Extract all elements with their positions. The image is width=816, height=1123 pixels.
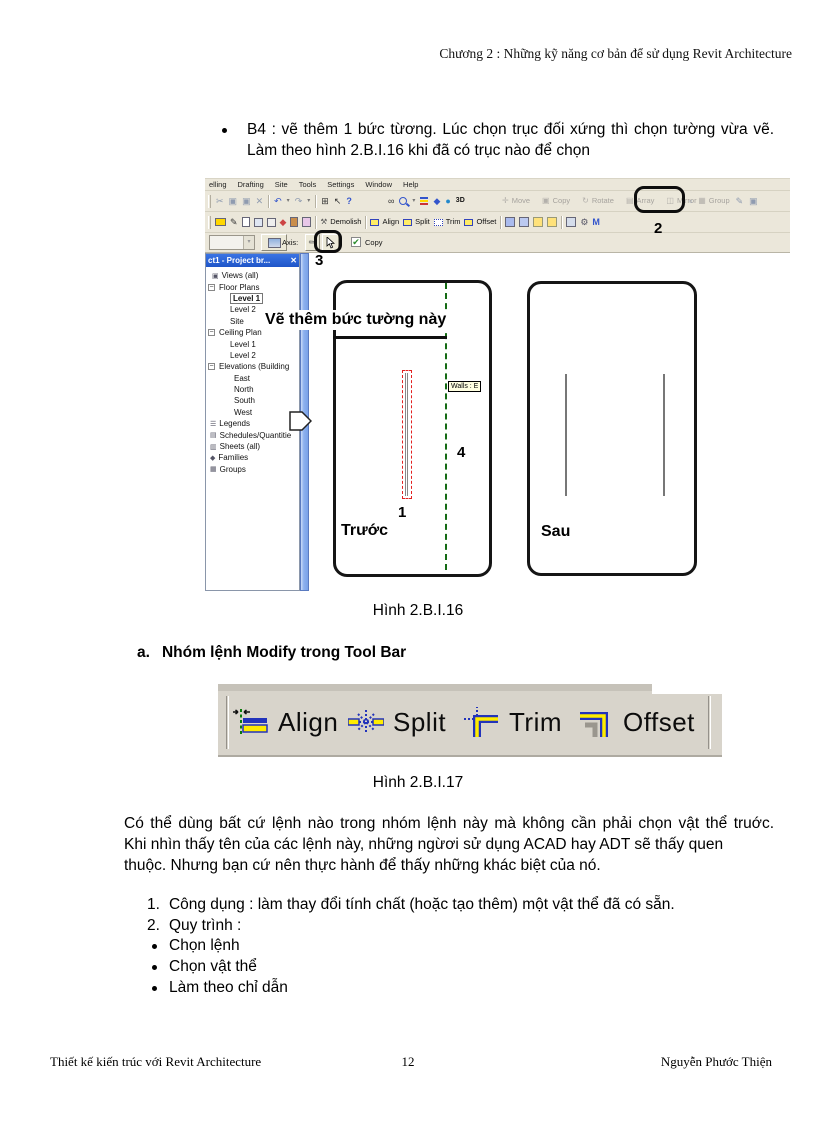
move-button[interactable]: ✛Move (502, 194, 530, 208)
groups-icon: ▦ (210, 465, 217, 473)
help-question-icon[interactable]: ? (346, 194, 352, 208)
help-pointer-icon[interactable]: ↖ (334, 194, 342, 208)
body-paragraph-line1: Có thể dùng bất cứ lệnh nào trong nhóm l… (124, 813, 774, 834)
tape-measure-icon[interactable] (215, 218, 226, 226)
split-icon (403, 219, 412, 226)
book-icon[interactable] (290, 217, 298, 227)
numbered-text-2: Quy trình : (169, 917, 241, 935)
result-wall-right (663, 374, 665, 496)
detach-icon[interactable]: ▫ (689, 194, 692, 208)
component-icon[interactable] (254, 218, 263, 227)
offset-button[interactable]: Offset (464, 215, 496, 229)
revit-toolbar-standard: ✂ ▣ ▣ ✕ ↶ ▾ ↷ ▾ ⊞ ↖? ∞ ▾ ◆ ● 3D (205, 191, 790, 212)
figure-16-caption: Hình 2.B.I.16 (55, 602, 781, 620)
array-icon: ▤ (626, 194, 634, 208)
tree-item-level-2[interactable]: Level 2 (207, 350, 299, 361)
tree-expander-icon[interactable]: − (208, 284, 215, 291)
walls-tooltip: Walls : E (448, 381, 481, 392)
rotate-label: Rotate (592, 194, 614, 208)
offset-label: Offset (623, 707, 695, 738)
group-button[interactable]: ▦ Group (698, 194, 729, 208)
footer-right: Nguyễn Phước Thiện (661, 1054, 772, 1070)
bullet-item-2: Chọn vật thể (152, 958, 772, 976)
move-label: Move (512, 194, 530, 208)
tree-item-label[interactable]: Elevations (Building (219, 362, 289, 371)
copy-icon: ▣ (542, 194, 550, 208)
b4-instruction-line2: Làm theo hình 2.B.I.16 khi đã có trục nà… (247, 140, 774, 161)
paste-icon[interactable]: ▣ (242, 194, 251, 208)
group-detach-icon[interactable] (547, 217, 557, 227)
tree-item-level-1[interactable]: Level 1 (207, 293, 299, 304)
toolbar-separator (268, 195, 269, 208)
shadow-view-icon[interactable]: ∞ (388, 194, 394, 208)
hammer-icon: ⚒ (320, 215, 327, 229)
numbered-marker-2: 2. (147, 917, 160, 935)
trim-icon (434, 219, 443, 226)
window-icon[interactable]: ⊞ (321, 194, 329, 208)
bullet-item-1: Chọn lệnh (152, 937, 772, 955)
tree-item-label[interactable]: Ceiling Plan (219, 328, 262, 337)
mirror-highlight-circle (634, 186, 685, 213)
close-icon[interactable]: ✕ (290, 256, 297, 265)
pin-icon[interactable]: ✎ (736, 194, 744, 208)
view-properties-icon[interactable] (420, 197, 428, 205)
revit-options-bar: ▾ Axis: ✎ ✔ Copy (205, 233, 790, 253)
tree-item-label[interactable]: Legends (219, 419, 250, 428)
split-label: Split (393, 707, 446, 738)
numbered-item-2: 2. Quy trình : (147, 917, 777, 935)
type-selector-combobox[interactable]: ▾ (209, 235, 255, 250)
menu-item-help[interactable]: Help (403, 180, 418, 190)
3d-view-button[interactable]: 3D (456, 194, 465, 208)
tree-item-label[interactable]: West (234, 408, 252, 417)
section-a-heading: a. Nhóm lệnh Modify trong Tool Bar (137, 644, 406, 662)
tree-item-families[interactable]: ◆Families (207, 452, 299, 463)
undo-dropdown-icon[interactable]: ▾ (287, 194, 290, 208)
axis-option-label: Axis: (282, 238, 298, 247)
legends-icon: ☰ (210, 420, 216, 428)
bullet-text-1: Chọn lệnh (169, 937, 240, 955)
fb-icon[interactable] (302, 217, 311, 227)
tree-item-west[interactable]: West (207, 407, 299, 418)
bullet-dot (222, 128, 227, 133)
copy-button[interactable]: ▣Copy (542, 194, 570, 208)
group-edit-icon[interactable] (505, 217, 515, 227)
toolbar-separator (365, 216, 366, 229)
section-a-title: Nhóm lệnh Modify trong Tool Bar (162, 644, 406, 662)
globe-icon[interactable]: ● (445, 194, 450, 208)
body-paragraph-line3: thuộc. Nhưng bạn cứ nên thực hành để thấ… (124, 855, 774, 876)
tree-item-groups[interactable]: ▦Groups (207, 464, 299, 475)
result-wall-left (565, 374, 567, 496)
pick-axis-highlight-circle (314, 230, 342, 253)
align-toolbar-button[interactable]: Align (233, 702, 338, 742)
trim-button[interactable]: Trim (434, 215, 461, 229)
offset-icon (578, 707, 614, 737)
document-page: Chương 2 : Những kỹ năng cơ bản để sử dụ… (0, 0, 816, 1123)
toolbar-separator (561, 216, 562, 229)
step-4-label: 4 (457, 444, 465, 461)
sheets-icon: ▥ (210, 443, 217, 451)
bullet-dot (152, 986, 157, 991)
schedules-icon: ▤ (210, 431, 217, 439)
tree-item-label[interactable]: Schedules/Quantitie (220, 431, 292, 440)
tree-item-label[interactable]: Groups (220, 465, 246, 474)
project-browser-panel: ct1 - Project br... ✕ ▣Views (all)−Floor… (205, 253, 300, 591)
selected-wall[interactable] (402, 370, 412, 499)
bullet-item-3: Làm theo chỉ dẫn (152, 979, 772, 997)
menu-item-window[interactable]: Window (365, 180, 392, 190)
toolbar-separator (315, 216, 316, 229)
step-3-label: 3 (315, 252, 323, 269)
room-icon[interactable] (267, 218, 276, 227)
group-icon: ▦ (698, 194, 706, 208)
link-icon[interactable] (566, 217, 576, 227)
wall-core (405, 373, 408, 496)
tree-item-label[interactable]: Level 2 (230, 351, 256, 360)
elevation-marker-arrow[interactable] (289, 411, 312, 431)
menu-item-drafting[interactable]: Drafting (238, 180, 264, 190)
toolbar-top-white (652, 684, 722, 694)
tree-item-schedules-quantitie[interactable]: ▤Schedules/Quantitie (207, 429, 299, 440)
tree-item-label[interactable]: Views (all) (222, 271, 259, 280)
copy-label: Copy (553, 194, 571, 208)
zoom-icon[interactable] (399, 197, 407, 205)
views-icon: ▣ (212, 272, 219, 280)
tree-item-legends[interactable]: ☰Legends (207, 418, 299, 429)
bullet-dot (152, 965, 157, 970)
align-icon (233, 707, 269, 737)
tree-item-label[interactable]: Level 1 (230, 340, 256, 349)
bullet-text-2: Chọn vật thể (169, 958, 257, 976)
toolbar-grip[interactable] (208, 195, 211, 208)
revit-menu-bar: ellingDraftingSiteToolsSettingsWindowHel… (205, 178, 790, 191)
split-icon (348, 707, 384, 737)
tree-item-label[interactable]: Site (230, 317, 244, 326)
toolbar-view-group: ∞ ▾ ◆ ● 3D (388, 194, 465, 208)
wall-annotation-label: Vẽ thêm bức tường này (261, 310, 450, 330)
numbered-item-1: 1. Công dụng : làm thay đổi tính chất (h… (147, 896, 777, 914)
redo-icon[interactable]: ↷ (295, 194, 303, 208)
group-label: Group (709, 194, 730, 208)
split-toolbar-button[interactable]: Split (348, 702, 446, 742)
copy-checkbox-label: Copy (365, 238, 383, 247)
combobox-dropdown-icon[interactable]: ▾ (243, 236, 254, 249)
tree-item-south[interactable]: South (207, 395, 299, 406)
door-icon[interactable] (242, 217, 250, 227)
trim-icon (464, 707, 500, 737)
align-button[interactable]: Align (370, 215, 399, 229)
tree-expander-icon[interactable]: − (208, 329, 215, 336)
undo-icon[interactable]: ↶ (274, 194, 282, 208)
tree-item-label[interactable]: Families (218, 453, 248, 462)
toolbar-right-groove (708, 696, 711, 749)
before-label: Trước (341, 522, 388, 540)
revit-screenshot-figure: ellingDraftingSiteToolsSettingsWindowHel… (205, 178, 790, 591)
body-paragraph-line2: Khi nhìn thấy tên của các lệnh này, nhữn… (124, 834, 774, 855)
families-icon: ◆ (210, 454, 215, 462)
tree-item-label[interactable]: South (234, 396, 255, 405)
split-button[interactable]: Split (403, 215, 430, 229)
paint-icon[interactable]: ◆ (280, 215, 287, 229)
group-attach-icon[interactable] (533, 217, 543, 227)
b4-instruction-line1: B4 : vẽ thêm 1 bức từơng. Lúc chọn trục … (247, 119, 774, 140)
rotate-button[interactable]: ↻Rotate (582, 194, 614, 208)
toolbar-top-strip (218, 684, 652, 691)
after-label: Sau (541, 523, 570, 541)
modify-toolbar-figure: Align Split Trim (218, 684, 722, 757)
toolbar-edit-group: ✂ ▣ ▣ ✕ ↶ ▾ ↷ ▾ ⊞ ↖? (208, 194, 352, 208)
redo-dropdown-icon[interactable]: ▾ (307, 194, 310, 208)
tree-item-label[interactable]: Level 2 (230, 305, 256, 314)
tree-item-label[interactable]: Sheets (all) (220, 442, 260, 451)
cube-icon[interactable]: ◆ (433, 194, 440, 208)
project-browser-titlebar[interactable]: ct1 - Project br... ✕ (206, 254, 299, 267)
tree-item-floor-plans[interactable]: −Floor Plans (207, 281, 299, 292)
tree-item-north[interactable]: North (207, 384, 299, 395)
group-add-icon[interactable] (519, 217, 529, 227)
align-icon (370, 219, 379, 226)
toolbar-grip[interactable] (208, 216, 211, 229)
toolbar-separator (315, 195, 316, 208)
project-browser-title: ct1 - Project br... (208, 256, 290, 265)
toolbar-separator (500, 216, 501, 229)
trim-toolbar-button[interactable]: Trim (464, 702, 562, 742)
page-header: Chương 2 : Những kỹ năng cơ bản để sử dụ… (439, 46, 792, 62)
align-label: Align (278, 707, 338, 738)
toolbar-draw-group: ✎ ◆ ⚒ Demolish Align S (208, 215, 600, 229)
section-a-marker: a. (137, 644, 150, 662)
project-browser-tree: ▣Views (all)−Floor PlansLevel 1Level 2Si… (207, 270, 299, 475)
toolbar-group-tools: ▫ ▦ Group ✎ ▣ (689, 194, 758, 208)
menu-item-elling[interactable]: elling (209, 180, 227, 190)
demolish-button[interactable]: ⚒ Demolish (320, 215, 361, 229)
tree-item-elevations-building[interactable]: −Elevations (Building (207, 361, 299, 372)
toolbar-left-groove (226, 696, 229, 749)
menu-item-settings[interactable]: Settings (327, 180, 354, 190)
copy-checkbox[interactable]: ✔ (351, 237, 361, 247)
menu-item-site[interactable]: Site (275, 180, 288, 190)
trim-label: Trim (509, 707, 562, 738)
tree-item-views-all[interactable]: ▣Views (all) (207, 270, 299, 281)
bullet-text-3: Làm theo chỉ dẫn (169, 979, 288, 997)
tree-item-label[interactable]: North (234, 385, 254, 394)
settings-gear-icon[interactable]: ⚙ (580, 215, 588, 229)
properties-image-icon (268, 238, 281, 248)
delete-icon[interactable]: ✕ (256, 194, 264, 208)
unpin-icon[interactable]: ▣ (749, 194, 758, 208)
move-icon: ✛ (502, 194, 509, 208)
copy-icon[interactable]: ▣ (229, 194, 238, 208)
numbered-marker-1: 1. (147, 896, 160, 914)
zoom-dropdown-icon[interactable]: ▾ (412, 194, 415, 208)
tree-item-label[interactable]: East (234, 374, 250, 383)
step-1-label: 1 (398, 504, 406, 521)
tree-expander-icon[interactable]: − (208, 363, 215, 370)
tree-item-label[interactable]: Floor Plans (219, 283, 259, 292)
annotation-underline-wall (333, 336, 447, 339)
bullet-dot (152, 944, 157, 949)
mass-tool-icon[interactable]: M (592, 215, 600, 229)
figure-17-caption: Hình 2.B.I.17 (55, 774, 781, 792)
step-2-label: 2 (654, 220, 662, 237)
rotate-icon: ↻ (582, 194, 589, 208)
revit-toolbar-tools: ✎ ◆ ⚒ Demolish Align S (205, 212, 790, 233)
offset-toolbar-button[interactable]: Offset (578, 702, 695, 742)
tree-item-sheets-all[interactable]: ▥Sheets (all) (207, 441, 299, 452)
tree-item-level-1[interactable]: Level 1 (207, 338, 299, 349)
pencil-icon[interactable]: ✎ (230, 215, 238, 229)
menu-item-tools[interactable]: Tools (299, 180, 317, 190)
numbered-text-1: Công dụng : làm thay đổi tính chất (hoặc… (169, 896, 675, 914)
offset-icon (464, 219, 473, 226)
cut-icon[interactable]: ✂ (216, 194, 224, 208)
tree-item-east[interactable]: East (207, 373, 299, 384)
tree-item-label[interactable]: Level 1 (230, 293, 263, 304)
